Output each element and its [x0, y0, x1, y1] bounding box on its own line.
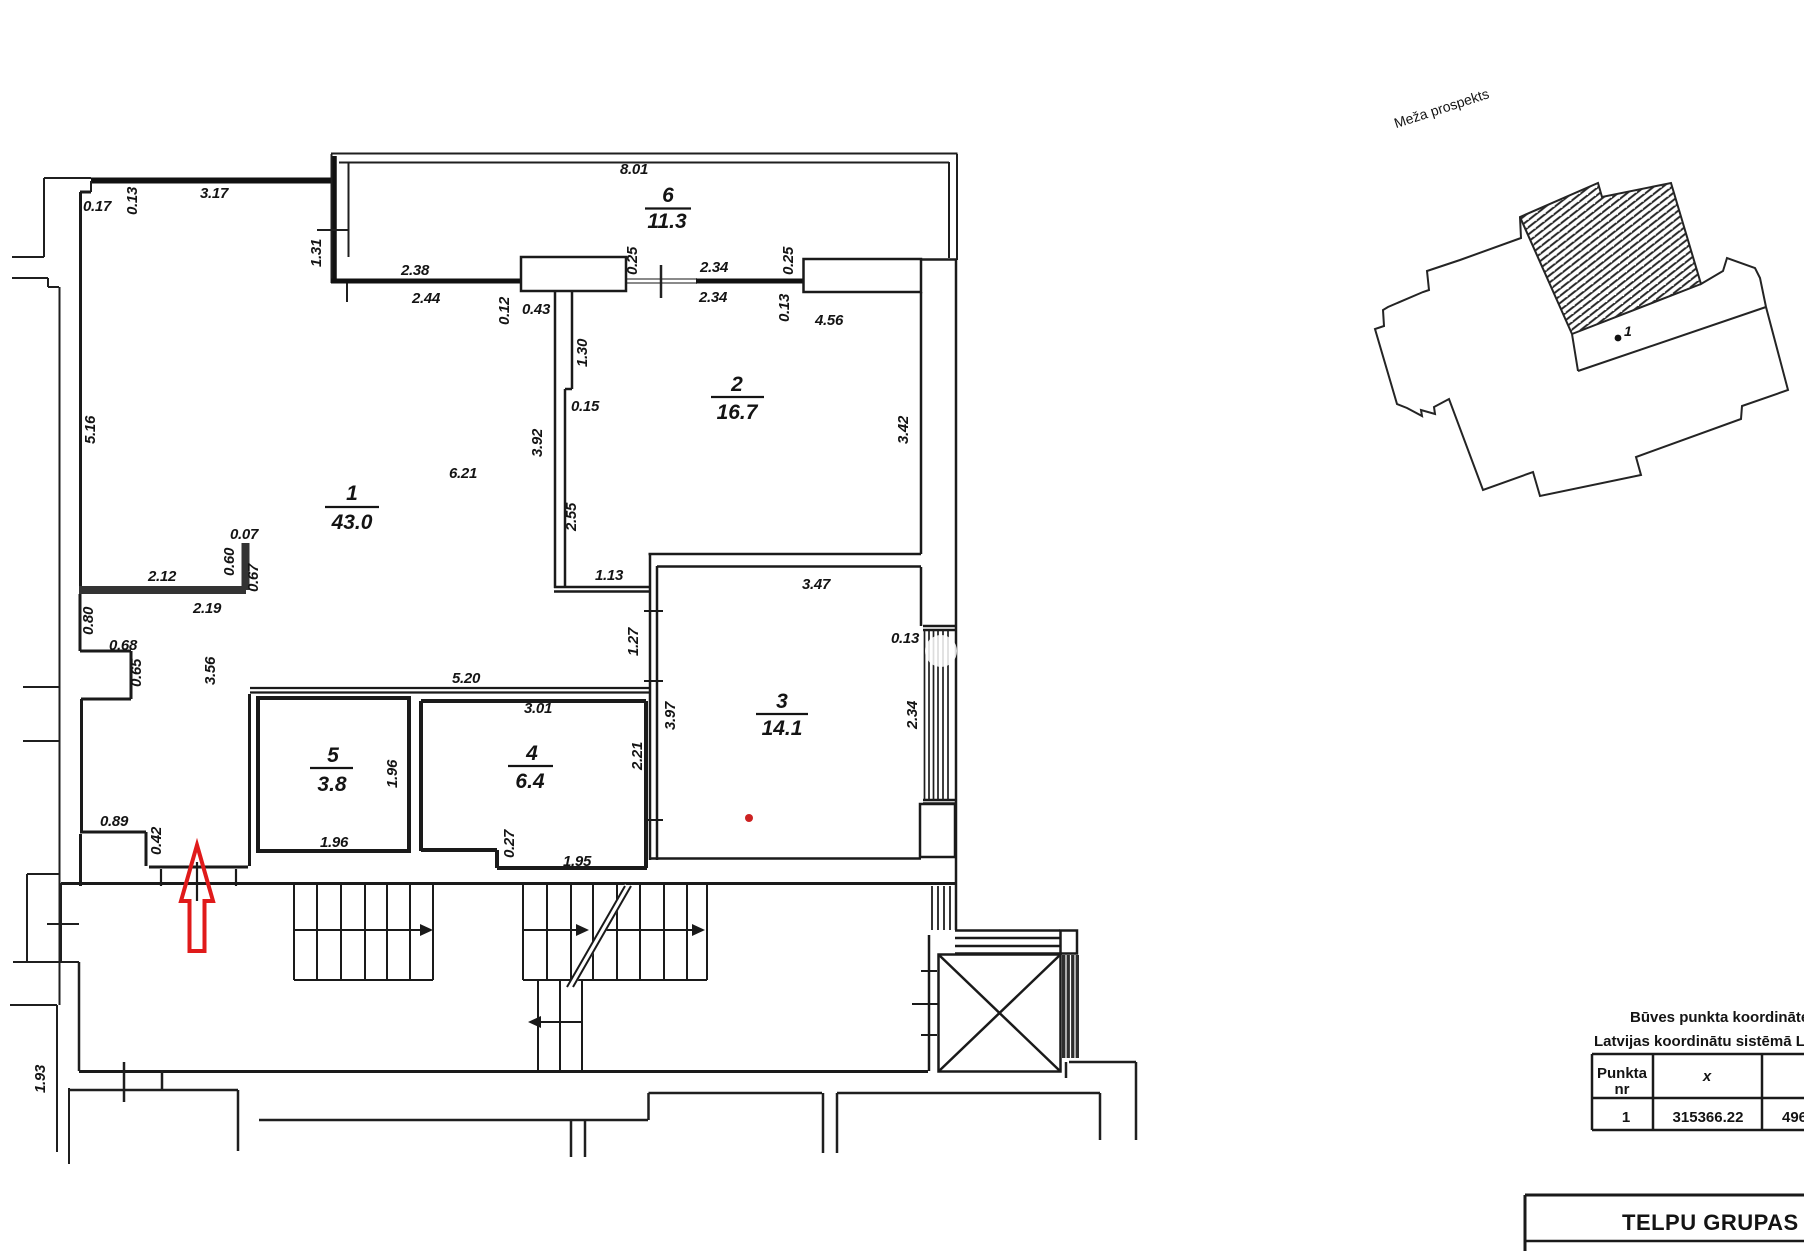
- svg-text:0.68: 0.68: [109, 637, 138, 654]
- svg-text:0.13: 0.13: [776, 293, 793, 322]
- svg-text:0.12: 0.12: [496, 296, 513, 325]
- svg-text:3.92: 3.92: [529, 428, 546, 457]
- svg-text:3.01: 3.01: [524, 700, 552, 717]
- svg-text:3.8: 3.8: [317, 773, 347, 796]
- svg-text:3.17: 3.17: [200, 185, 229, 202]
- svg-text:4: 4: [525, 742, 538, 765]
- svg-text:16.7: 16.7: [717, 401, 759, 424]
- svg-text:6: 6: [662, 184, 674, 207]
- svg-text:0.80: 0.80: [80, 606, 97, 635]
- svg-text:1.95: 1.95: [563, 853, 592, 870]
- svg-text:2: 2: [730, 373, 743, 396]
- svg-text:0.25: 0.25: [780, 246, 797, 275]
- svg-text:1.31: 1.31: [308, 239, 325, 267]
- svg-text:3.56: 3.56: [202, 656, 219, 685]
- svg-text:5.16: 5.16: [82, 415, 99, 444]
- svg-text:0.25: 0.25: [624, 246, 641, 275]
- svg-text:nr: nr: [1615, 1081, 1630, 1098]
- svg-text:5.20: 5.20: [452, 670, 481, 687]
- svg-text:2.21: 2.21: [629, 742, 646, 771]
- svg-text:0.65: 0.65: [128, 658, 145, 687]
- svg-text:1: 1: [1622, 1109, 1630, 1126]
- svg-text:1.93: 1.93: [32, 1064, 49, 1093]
- svg-text:2.55: 2.55: [563, 502, 580, 532]
- svg-text:496: 496: [1782, 1109, 1804, 1126]
- svg-text:2.19: 2.19: [192, 600, 222, 617]
- svg-text:1.27: 1.27: [625, 627, 642, 656]
- svg-text:0.27: 0.27: [501, 829, 518, 858]
- svg-text:0.67: 0.67: [245, 563, 262, 592]
- svg-text:4.56: 4.56: [814, 312, 844, 329]
- svg-text:2.34: 2.34: [699, 259, 729, 276]
- svg-text:3.42: 3.42: [895, 415, 912, 444]
- svg-text:Punkta: Punkta: [1597, 1065, 1648, 1082]
- svg-text:3.97: 3.97: [662, 701, 679, 730]
- svg-text:0.43: 0.43: [522, 301, 551, 318]
- svg-text:Būves punkta koordinātes: Būves punkta koordinātes: [1630, 1009, 1804, 1026]
- svg-text:14.1: 14.1: [762, 717, 803, 740]
- svg-text:1.30: 1.30: [574, 338, 591, 367]
- svg-text:1: 1: [346, 482, 358, 505]
- svg-text:x: x: [1702, 1068, 1712, 1085]
- svg-text:0.15: 0.15: [571, 398, 600, 415]
- svg-text:2.34: 2.34: [698, 289, 728, 306]
- svg-text:5: 5: [327, 744, 339, 767]
- svg-text:0.13: 0.13: [124, 186, 141, 215]
- svg-text:43.0: 43.0: [331, 511, 373, 534]
- svg-text:315366.22: 315366.22: [1673, 1109, 1744, 1126]
- svg-text:2.34: 2.34: [904, 700, 921, 730]
- svg-text:0.17: 0.17: [83, 198, 112, 215]
- svg-text:3: 3: [776, 690, 788, 713]
- svg-text:8.01: 8.01: [620, 161, 648, 178]
- svg-text:1.96: 1.96: [384, 759, 401, 788]
- svg-text:2.12: 2.12: [147, 568, 177, 585]
- svg-text:6.4: 6.4: [515, 770, 545, 793]
- svg-text:0.89: 0.89: [100, 813, 129, 830]
- svg-text:1.96: 1.96: [320, 834, 349, 851]
- svg-text:11.3: 11.3: [647, 210, 687, 233]
- svg-text:3.47: 3.47: [802, 576, 831, 593]
- svg-text:Latvijas koordinātu sistēmā LK: Latvijas koordinātu sistēmā LKS-92: [1594, 1033, 1804, 1050]
- svg-text:0.60: 0.60: [221, 547, 238, 576]
- svg-text:0.13: 0.13: [891, 630, 920, 647]
- svg-text:0.42: 0.42: [148, 826, 165, 855]
- svg-text:1.13: 1.13: [595, 567, 624, 584]
- svg-text:2.44: 2.44: [411, 290, 441, 307]
- svg-text:TELPU GRUPAS P: TELPU GRUPAS P: [1622, 1210, 1804, 1235]
- svg-text:2.38: 2.38: [400, 262, 430, 279]
- svg-text:0.07: 0.07: [230, 526, 259, 543]
- svg-text:1: 1: [1624, 323, 1632, 339]
- svg-text:6.21: 6.21: [449, 465, 477, 482]
